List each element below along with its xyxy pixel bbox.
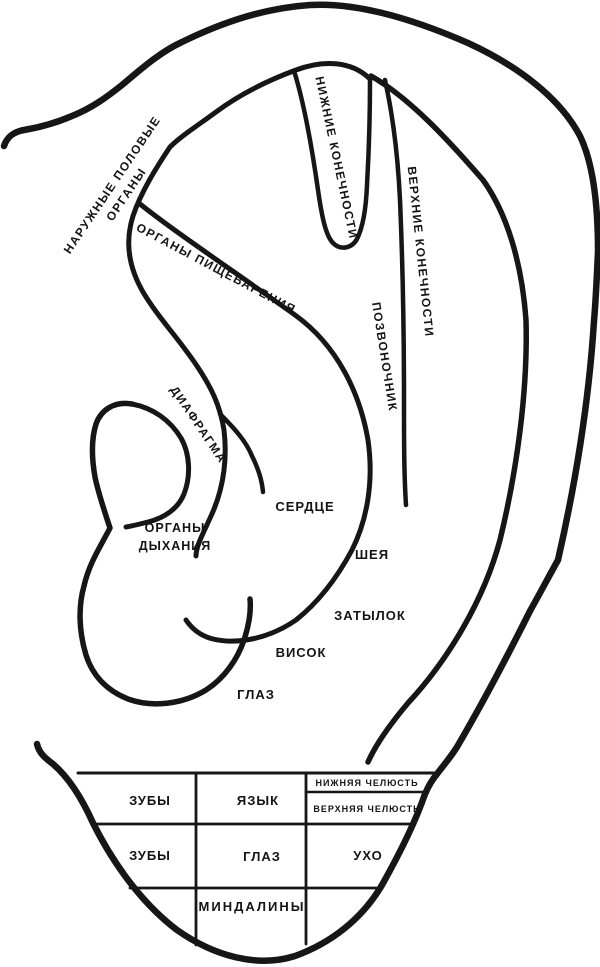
zone-label-heart: СЕРДЦЕ (275, 500, 334, 514)
lobe-cell-upper-jaw: ВЕРХНЯЯ ЧЕЛЮСТЬ (313, 805, 420, 815)
concha-boundary-path (140, 204, 370, 641)
ear-line-art (0, 0, 600, 967)
lobe-cell-teeth-lower: ЗУБЫ (129, 849, 171, 863)
zone-label-respiratory-organs: ОРГАНЫ ДЫХАНИЯ (139, 519, 212, 555)
lobe-cell-tongue: ЯЗЫК (237, 794, 279, 808)
zone-label-occiput: ЗАТЫЛОК (334, 609, 406, 623)
zone-label-temple: ВИСОК (276, 646, 327, 660)
lobe-cell-eye: ГЛАЗ (243, 850, 281, 864)
zone-label-eye: ГЛАЗ (237, 688, 275, 702)
lobe-cell-ear: УХО (353, 849, 383, 863)
zone-label-neck: ШЕЯ (355, 548, 389, 562)
lobe-cell-teeth-upper: ЗУБЫ (129, 794, 171, 808)
spine-boundary-path (385, 80, 406, 505)
respiratory-zone-upper-lobe-path (126, 404, 189, 527)
zone-label-respiratory-organs-line2: ДЫХАНИЯ (139, 539, 212, 553)
zone-label-respiratory-organs-line1: ОРГАНЫ (145, 521, 206, 535)
lobe-cell-lower-jaw: НИЖНЯЯ ЧЕЛЮСТЬ (315, 779, 418, 789)
ear-outer-outline-path (4, 5, 598, 961)
ear-reflexology-diagram: НАРУЖНЫЕ ПОЛОВЫЕ ОРГАНЫ ОРГАНЫ ПИЩЕВАРЕН… (0, 0, 600, 967)
lobe-cell-tonsils: МИНДАЛИНЫ (199, 900, 306, 914)
